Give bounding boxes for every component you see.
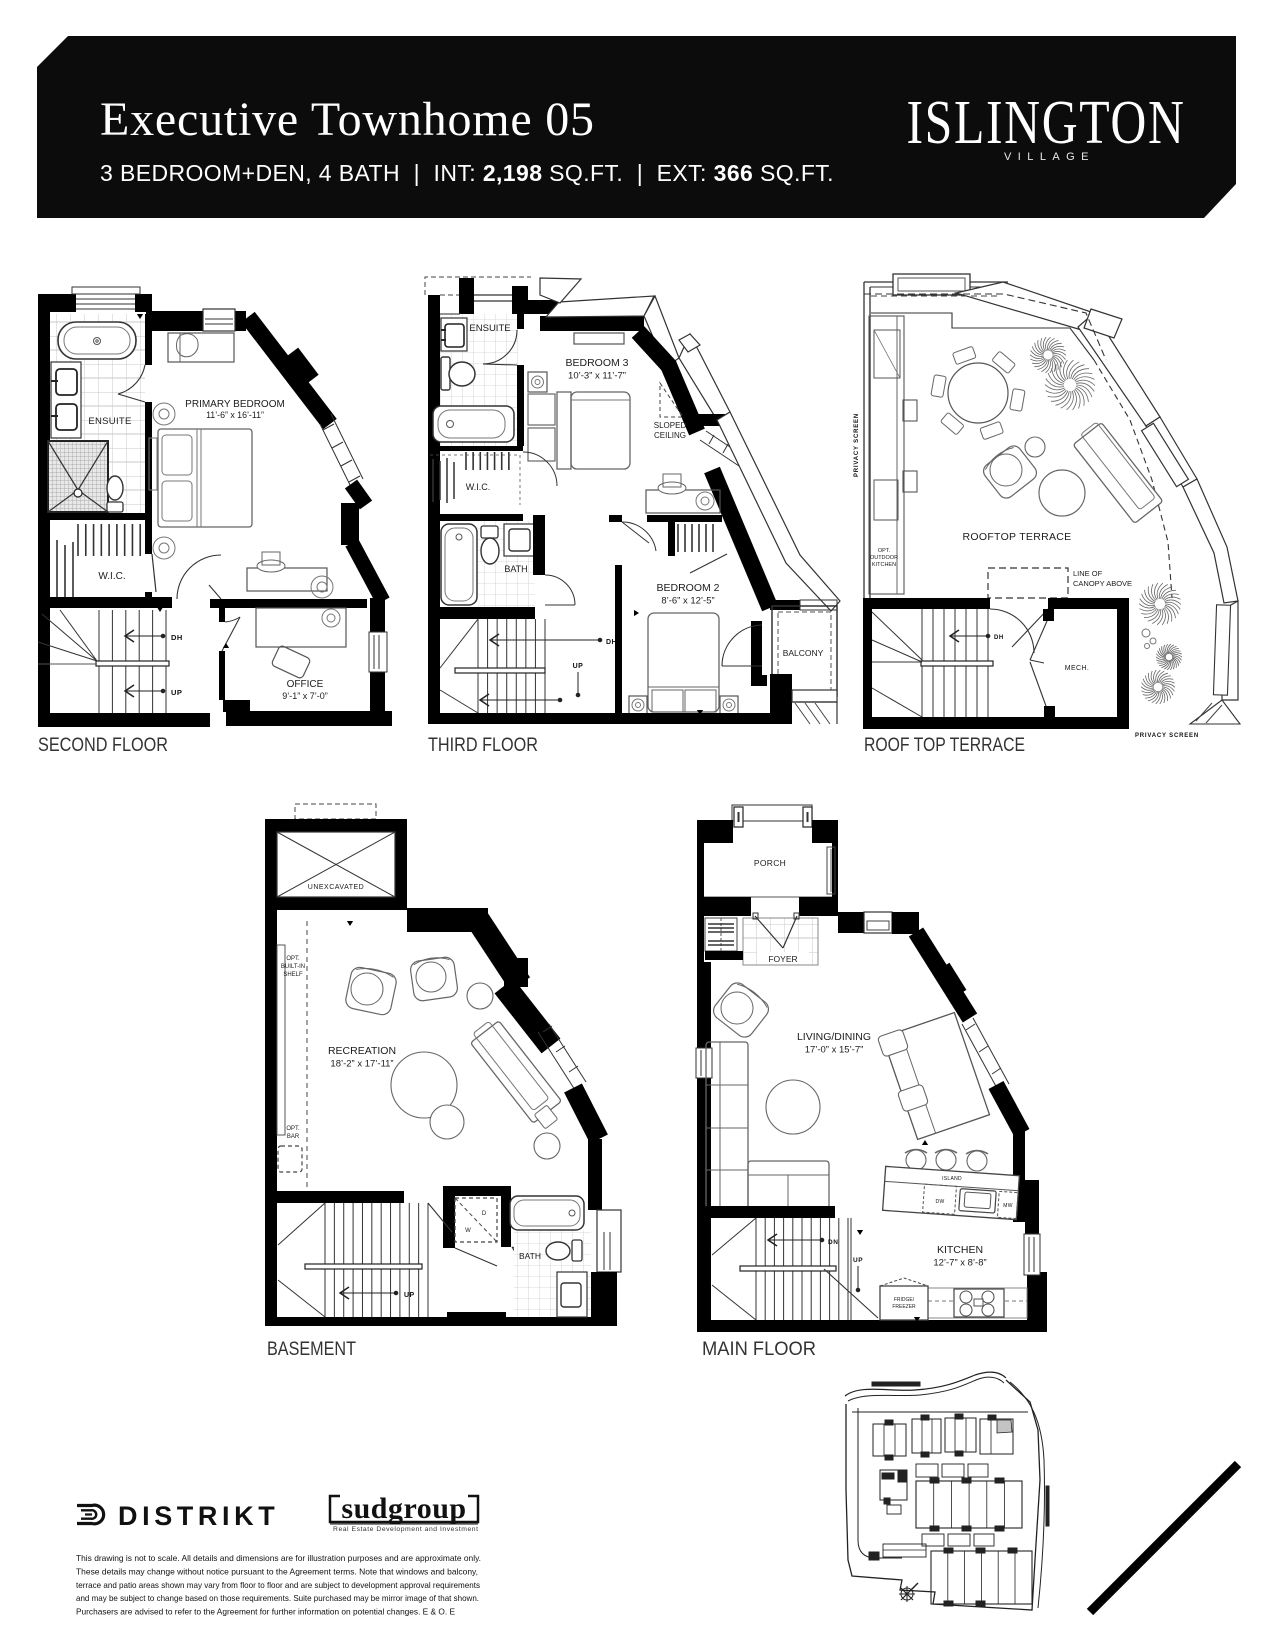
svg-text:CANOPY ABOVE: CANOPY ABOVE bbox=[1073, 579, 1132, 588]
svg-text:VILLAGE: VILLAGE bbox=[1004, 151, 1096, 163]
svg-text:ENSUITE: ENSUITE bbox=[469, 323, 510, 334]
svg-text:OFFICE: OFFICE bbox=[287, 679, 324, 690]
svg-text:LINE OF: LINE OF bbox=[1073, 569, 1103, 578]
svg-text:These details may change witho: These details may change without notice … bbox=[76, 1566, 478, 1576]
svg-text:OPT.: OPT. bbox=[878, 548, 891, 554]
svg-text:MW: MW bbox=[1003, 1203, 1012, 1209]
svg-text:BAR: BAR bbox=[287, 1134, 300, 1140]
svg-text:MAIN FLOOR: MAIN FLOOR bbox=[702, 1339, 816, 1360]
svg-text:10’-3” x 11’-7”: 10’-3” x 11’-7” bbox=[568, 371, 626, 382]
svg-text:17’-0” x 15’-7”: 17’-0” x 15’-7” bbox=[805, 1045, 864, 1056]
svg-text:18’-2” x 17’-11”: 18’-2” x 17’-11” bbox=[330, 1059, 393, 1070]
svg-text:W: W bbox=[465, 1228, 471, 1234]
svg-text:W.I.C.: W.I.C. bbox=[98, 571, 125, 582]
svg-text:Purchasers are advised to refe: Purchasers are advised to refer to the A… bbox=[76, 1607, 455, 1617]
svg-text:ENSUITE: ENSUITE bbox=[88, 416, 131, 427]
svg-text:OUTDOOR: OUTDOOR bbox=[870, 555, 898, 561]
svg-text:and may be subject to change b: and may be subject to change based on th… bbox=[76, 1593, 479, 1603]
svg-text:DISTRIKT: DISTRIKT bbox=[118, 1501, 279, 1531]
svg-text:RECREATION: RECREATION bbox=[328, 1045, 396, 1057]
svg-text:SLOPED: SLOPED bbox=[654, 421, 687, 430]
svg-text:PRIMARY BEDROOM: PRIMARY BEDROOM bbox=[185, 399, 285, 410]
svg-text:ISLAND: ISLAND bbox=[942, 1176, 962, 1182]
svg-text:BEDROOM 3: BEDROOM 3 bbox=[565, 357, 628, 369]
svg-text:BEDROOM 2: BEDROOM 2 bbox=[656, 582, 719, 594]
svg-text:3 BEDROOM+DEN, 4 BATH | INT:: 3 BEDROOM+DEN, 4 BATH | INT: 2,198 SQ.FT… bbox=[100, 160, 834, 186]
svg-text:11’-6” x 16’-11”: 11’-6” x 16’-11” bbox=[206, 410, 264, 420]
svg-text:UP: UP bbox=[171, 688, 182, 697]
svg-text:DN: DN bbox=[828, 1239, 838, 1246]
svg-text:8’-6” x 12’-5”: 8’-6” x 12’-5” bbox=[661, 596, 714, 607]
svg-text:9’-1” x 7’-0”: 9’-1” x 7’-0” bbox=[282, 691, 328, 701]
svg-text:KITCHEN: KITCHEN bbox=[937, 1244, 983, 1256]
svg-text:D: D bbox=[482, 1211, 487, 1217]
svg-text:UP: UP bbox=[853, 1257, 863, 1264]
svg-text:12’-7” x 8’-8”: 12’-7” x 8’-8” bbox=[933, 1258, 986, 1269]
svg-text:MECH.: MECH. bbox=[1065, 665, 1090, 672]
svg-text:DH: DH bbox=[171, 633, 183, 642]
svg-text:UP: UP bbox=[573, 663, 584, 670]
svg-text:CEILING: CEILING bbox=[654, 431, 686, 440]
svg-text:PORCH: PORCH bbox=[754, 858, 786, 868]
svg-text:UP: UP bbox=[404, 1292, 415, 1299]
svg-text:W.I.C.: W.I.C. bbox=[466, 482, 491, 492]
svg-text:PRIVACY SCREEN: PRIVACY SCREEN bbox=[854, 413, 860, 477]
svg-text:PRIVACY SCREEN: PRIVACY SCREEN bbox=[1135, 733, 1199, 739]
svg-text:BUILT-IN: BUILT-IN bbox=[281, 964, 305, 970]
svg-text:OPT.: OPT. bbox=[286, 956, 300, 962]
svg-text:ROOFTOP TERRACE: ROOFTOP TERRACE bbox=[963, 531, 1072, 543]
svg-text:FRIDGE/: FRIDGE/ bbox=[894, 1297, 915, 1303]
svg-text:BATH: BATH bbox=[519, 1251, 541, 1261]
svg-text:LIVING/DINING: LIVING/DINING bbox=[797, 1031, 871, 1043]
svg-text:FREEZER: FREEZER bbox=[892, 1304, 916, 1310]
svg-text:terrace and patio areas shown: terrace and patio areas shown may vary f… bbox=[76, 1580, 480, 1590]
svg-text:SECOND FLOOR: SECOND FLOOR bbox=[38, 735, 168, 756]
svg-text:BALCONY: BALCONY bbox=[783, 648, 824, 658]
svg-text:SHELF: SHELF bbox=[283, 972, 303, 978]
svg-text:ROOF TOP TERRACE: ROOF TOP TERRACE bbox=[864, 735, 1025, 756]
svg-text:BATH: BATH bbox=[504, 564, 527, 574]
svg-text:UNEXCAVATED: UNEXCAVATED bbox=[308, 884, 364, 891]
svg-text:OPT.: OPT. bbox=[286, 1126, 300, 1132]
svg-text:KITCHEN: KITCHEN bbox=[872, 562, 896, 568]
svg-text:ISLINGTON: ISLINGTON bbox=[907, 89, 1186, 157]
svg-text:BASEMENT: BASEMENT bbox=[267, 1339, 356, 1360]
svg-text:This drawing is not to scale.: This drawing is not to scale. All detail… bbox=[76, 1553, 481, 1563]
svg-text:DH: DH bbox=[994, 635, 1004, 641]
svg-text:Executive Townhome 05: Executive Townhome 05 bbox=[100, 93, 594, 146]
svg-text:sudgroup: sudgroup bbox=[341, 1492, 466, 1525]
svg-text:FOYER: FOYER bbox=[768, 954, 797, 964]
svg-text:THIRD FLOOR: THIRD FLOOR bbox=[428, 735, 538, 756]
svg-text:DW: DW bbox=[936, 1199, 945, 1205]
svg-text:Real Estate Development and In: Real Estate Development and Investment bbox=[333, 1526, 478, 1533]
